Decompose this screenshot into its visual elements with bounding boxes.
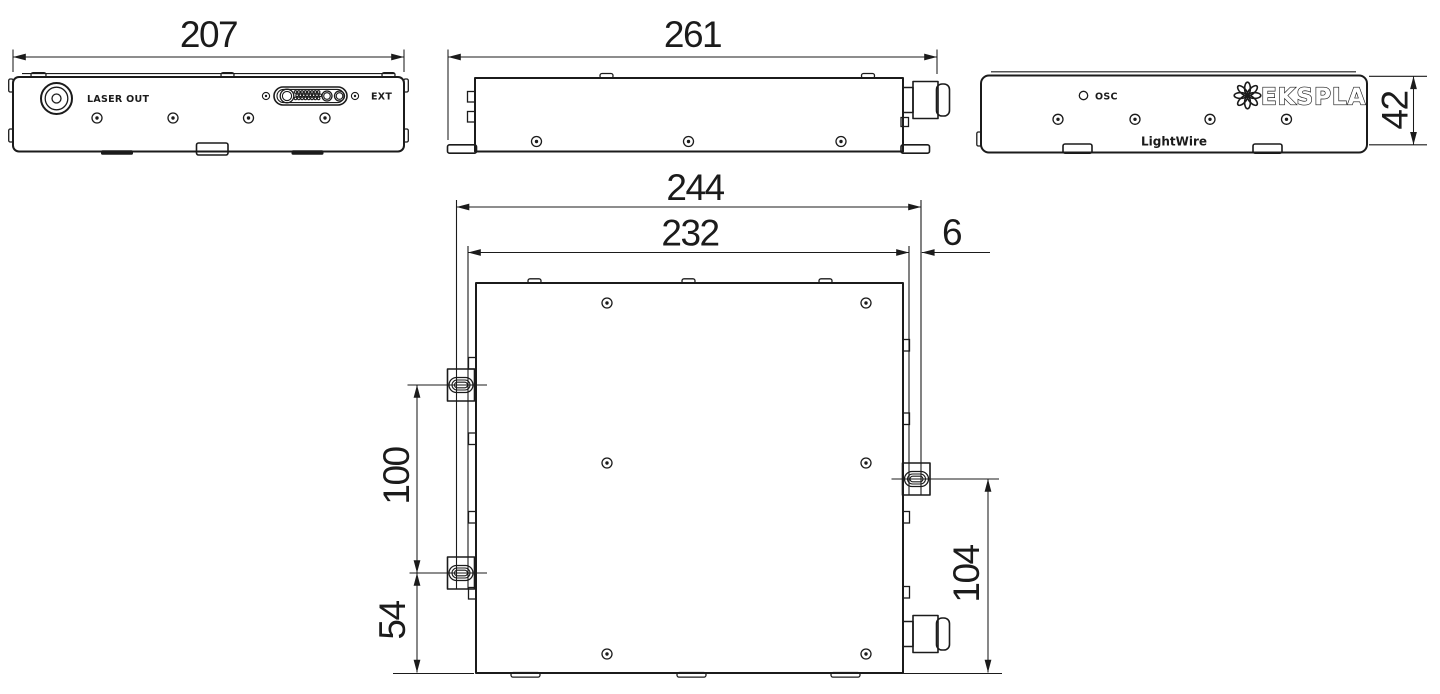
top-view: 244 232 6: [372, 167, 1002, 677]
screw-hole: [1282, 114, 1292, 124]
side-view: 261: [448, 14, 950, 153]
technical-drawing-page: 207 LASER OUT EXT: [0, 0, 1440, 694]
laser-aperture: [41, 83, 72, 114]
screw-hole: [168, 113, 178, 123]
screw-hole: [602, 298, 612, 308]
dim-261-label: 261: [664, 14, 721, 55]
screw-hole: [1053, 114, 1063, 124]
osc-label: OSC: [1095, 92, 1118, 103]
dim-104-label: 104: [946, 544, 987, 602]
dim-104: 104: [946, 479, 988, 673]
front-view: 207 LASER OUT EXT: [9, 14, 409, 155]
front-foot: [292, 150, 324, 155]
screw-hole: [532, 137, 542, 147]
screw-hole: [602, 458, 612, 468]
ekspla-logo-icon: [1234, 82, 1261, 109]
ekspla-brand-label: EKSPLA: [1261, 85, 1366, 111]
screw-hole: [244, 113, 254, 123]
dim-232-label: 232: [661, 213, 718, 254]
laser-head-dimension-drawing: 207 LASER OUT EXT: [0, 0, 1440, 694]
side-foot: [901, 145, 930, 153]
screw-hole: [320, 113, 330, 123]
lightwire-label: LightWire: [1141, 135, 1207, 149]
front-foot: [101, 150, 133, 155]
dim-244-label: 244: [666, 167, 724, 208]
dim-100-label: 100: [376, 446, 417, 504]
top-body: [476, 283, 903, 673]
dim-207-label: 207: [180, 14, 237, 55]
side-foot: [448, 145, 477, 153]
dim-6: 6: [922, 212, 990, 253]
screw-hole: [861, 458, 871, 468]
dim-54: 54: [372, 573, 417, 673]
ext-label: EXT: [371, 92, 392, 103]
screw-hole: [684, 137, 694, 147]
screw-hole: [92, 113, 102, 123]
screw-hole: [1205, 114, 1215, 124]
front-bottom-tab: [197, 143, 229, 155]
cable-gland-top: [903, 616, 950, 653]
ext-connector: [262, 87, 358, 105]
osc-led: [1079, 91, 1087, 99]
dim-207: 207: [13, 14, 404, 72]
left-edge-notch: [469, 512, 477, 524]
dim-42-label: 42: [1375, 91, 1416, 129]
dim-42: 42: [1369, 76, 1427, 145]
cable-gland-side: [903, 82, 950, 119]
laser-out-label: LASER OUT: [87, 94, 150, 105]
connector-pins: [294, 91, 321, 100]
dim-232: 232: [468, 213, 909, 589]
screw-hole: [602, 649, 612, 659]
dim-6-label: 6: [942, 212, 961, 253]
left-edge-notch: [469, 433, 477, 445]
front-body: [13, 77, 404, 152]
screw-hole: [861, 298, 871, 308]
left-edge-notch: [469, 358, 477, 370]
dim-100: 100: [376, 385, 417, 573]
screw-hole: [1130, 114, 1140, 124]
screw-hole: [836, 137, 846, 147]
screw-hole: [861, 649, 871, 659]
back-view: OSC EKSPLA LightWire 42: [977, 72, 1427, 153]
dim-54-label: 54: [372, 601, 413, 640]
